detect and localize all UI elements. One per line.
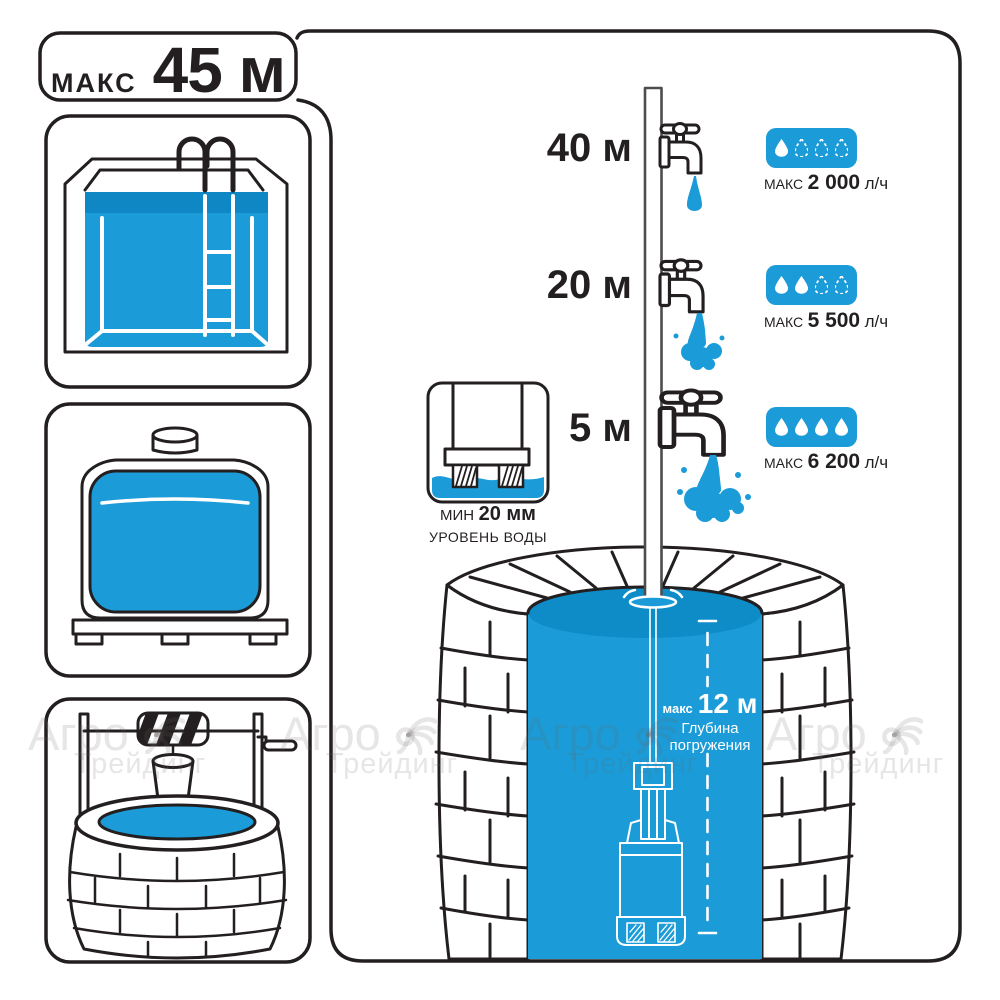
tap-height-label-5m: 5 м bbox=[480, 406, 632, 450]
droplet-icon bbox=[835, 418, 848, 436]
flow-rate-text-40m: МАКС 2 000 л/ч bbox=[764, 171, 888, 195]
flow-rate-text-20m: МАКС 5 500 л/ч bbox=[764, 309, 888, 333]
droplet-icon bbox=[775, 418, 788, 436]
pump-infographic: МАКС 45 м 40 м 20 м 5 м МАКС 2 000 л/ч М… bbox=[0, 0, 1000, 1000]
max-head-value: 45 м bbox=[153, 33, 285, 107]
droplet-icon bbox=[815, 276, 828, 294]
well-illustration bbox=[68, 713, 296, 958]
droplet-icon bbox=[815, 139, 828, 157]
droplet-icon bbox=[795, 418, 808, 436]
immersion-depth-caption: макс 12 м Глубина погружения bbox=[640, 688, 780, 754]
well-windlass bbox=[134, 713, 208, 745]
tap-height-label-20m: 20 м bbox=[480, 263, 632, 307]
flow-rate-text-5m: МАКС 6 200 л/ч bbox=[764, 450, 888, 474]
max-head-label: МАКС bbox=[51, 68, 137, 99]
flow-rate-badge-40m bbox=[766, 128, 857, 168]
flow-rate-badge-20m bbox=[766, 265, 857, 305]
well-crank-handle bbox=[264, 741, 296, 750]
droplet-icon bbox=[795, 139, 808, 157]
droplet-icon bbox=[775, 139, 788, 157]
droplet-icon bbox=[835, 139, 848, 157]
tap-40m bbox=[660, 124, 701, 174]
flow-rate-badge-5m bbox=[766, 407, 857, 447]
tap-20m bbox=[660, 260, 703, 312]
water-streams bbox=[674, 176, 752, 522]
droplet-icon bbox=[775, 276, 788, 294]
max-head-callout: МАКС 45 м bbox=[40, 33, 296, 100]
tank-illustration bbox=[73, 428, 287, 644]
min-water-level-caption: МИН 20 мм УРОВЕНЬ ВОДЫ bbox=[408, 503, 568, 545]
droplet-icon bbox=[815, 418, 828, 436]
tap-height-label-40m: 40 м bbox=[480, 126, 632, 170]
min-water-level-subcaption: УРОВЕНЬ ВОДЫ bbox=[408, 529, 568, 545]
droplet-icon bbox=[795, 276, 808, 294]
tap-5m bbox=[660, 390, 724, 454]
droplet-icon bbox=[835, 276, 848, 294]
pool-illustration bbox=[65, 139, 287, 352]
well-water bbox=[528, 587, 762, 959]
